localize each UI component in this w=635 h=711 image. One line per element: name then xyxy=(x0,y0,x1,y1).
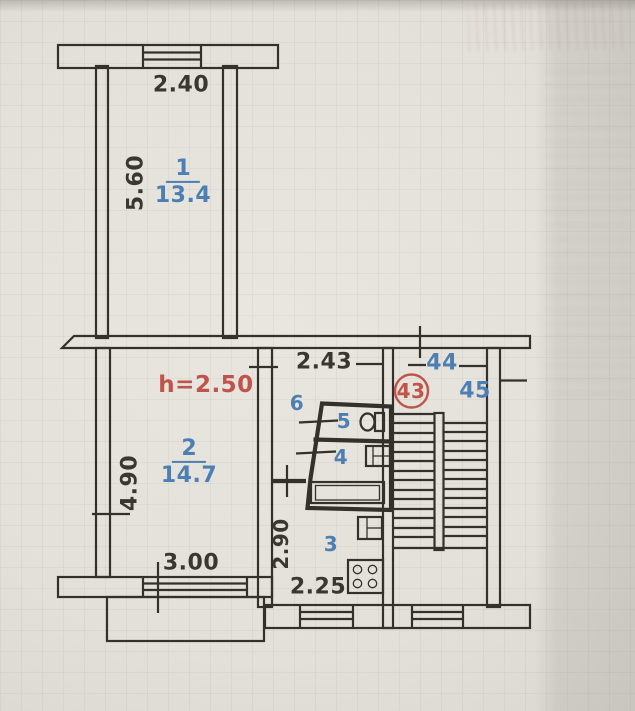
room6-label: 6 xyxy=(290,391,304,415)
door-opening-mark xyxy=(296,452,336,454)
dim-room1-depth: 5.60 xyxy=(124,155,149,211)
room5-label: 5 xyxy=(337,409,351,433)
dim-hall-width: 2.43 xyxy=(296,350,352,375)
stairwell-window-icon xyxy=(412,605,463,628)
door-opening-mark xyxy=(272,465,306,497)
room2-area: 14.7 xyxy=(161,463,217,487)
apartment-43-label: 43 xyxy=(397,379,426,403)
stairs-icon xyxy=(394,413,486,550)
dim-room2-depth: 4.90 xyxy=(118,455,143,511)
stove-icon xyxy=(348,560,383,593)
room1-area: 13.4 xyxy=(155,183,211,207)
room2-number: 2 xyxy=(172,437,205,463)
apartment-45-label: 45 xyxy=(459,379,491,404)
floorplan-sheet: 2.40 5.60 1 13.4 h=2.50 2.43 44 43 45 2 … xyxy=(0,0,635,711)
kitchen-sink-icon xyxy=(358,517,382,539)
bathtub-icon xyxy=(311,482,384,503)
room4-label: 4 xyxy=(334,445,348,469)
apartment-44-label: 44 xyxy=(426,351,458,376)
room1-number: 1 xyxy=(166,157,199,183)
room3-label: 3 xyxy=(324,532,338,556)
dim-kitchen-depth: 2.90 xyxy=(269,518,293,569)
room2-label: 2 14.7 xyxy=(161,437,217,487)
kitchen-window-icon xyxy=(300,605,353,628)
room1-window-icon xyxy=(143,45,201,68)
dim-ceiling-height: h=2.50 xyxy=(158,372,253,398)
room1-label: 1 13.4 xyxy=(155,157,211,207)
dim-room2-window: 3.00 xyxy=(163,551,219,576)
toilet-icon xyxy=(361,413,385,431)
door-opening-mark xyxy=(299,421,338,423)
balcony-outline xyxy=(107,597,264,641)
washbasin-icon xyxy=(366,446,390,466)
stairwell-walls xyxy=(487,348,527,607)
dim-room1-width: 2.40 xyxy=(153,73,209,98)
dim-kitchen-width: 2.25 xyxy=(290,575,346,600)
